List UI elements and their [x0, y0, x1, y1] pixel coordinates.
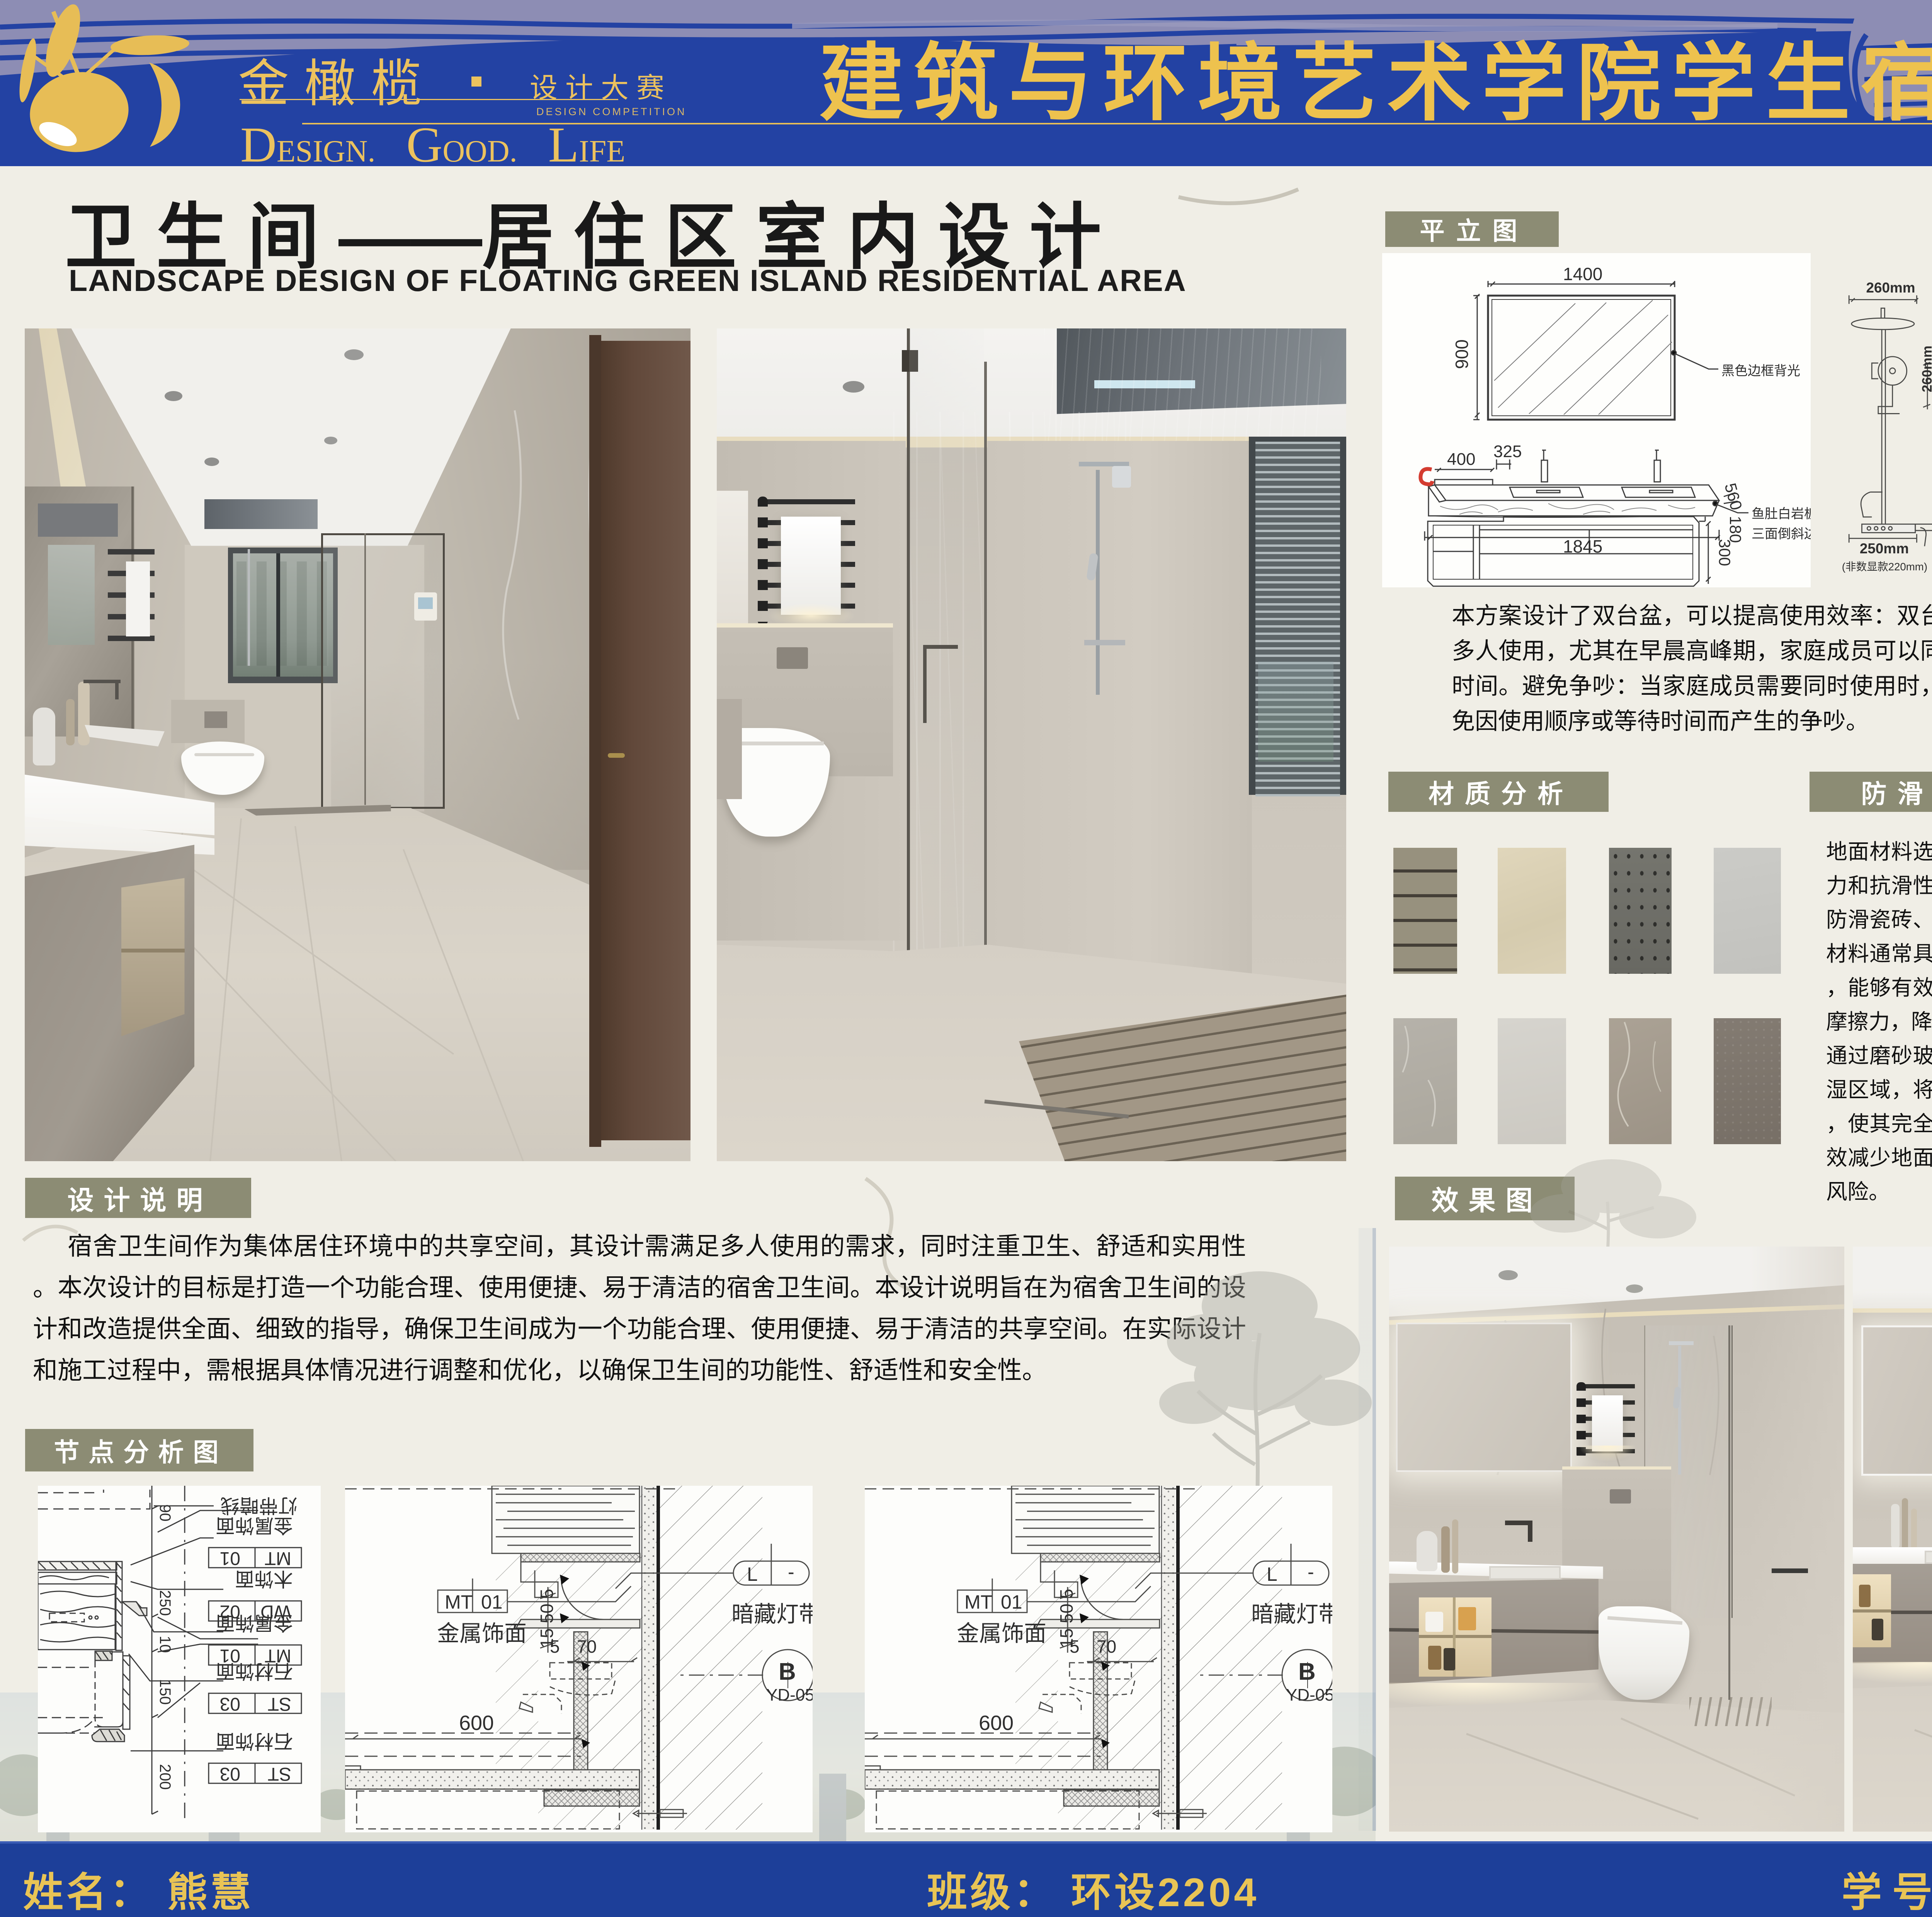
svg-text:15 50 5: 15 50 5 — [1056, 1589, 1077, 1648]
svg-text:90: 90 — [156, 1504, 173, 1522]
svg-text:01: 01 — [481, 1591, 503, 1613]
svg-text:黑色边框背光: 黑色边框背光 — [1721, 364, 1800, 378]
svg-text:金属饰面: 金属饰面 — [437, 1621, 527, 1646]
svg-text:260mm: 260mm — [1920, 345, 1932, 392]
svg-text:暗藏灯带: 暗藏灯带 — [1251, 1602, 1332, 1627]
svg-text:200: 200 — [156, 1764, 173, 1790]
svg-text:600: 600 — [459, 1711, 494, 1735]
svg-text:MT: MT — [265, 1548, 291, 1568]
svg-text:250mm: 250mm — [1860, 541, 1909, 556]
svg-text:MT: MT — [964, 1591, 992, 1613]
svg-text:1400: 1400 — [1563, 264, 1602, 284]
svg-text:石材饰面: 石材饰面 — [216, 1660, 293, 1682]
svg-text:260mm: 260mm — [1866, 280, 1915, 296]
svg-text:1845: 1845 — [1563, 536, 1602, 556]
svg-text:ST: ST — [268, 1764, 291, 1784]
svg-text:03: 03 — [220, 1694, 240, 1714]
svg-text:金属饰面: 金属饰面 — [216, 1515, 293, 1536]
svg-text:(非数显款220mm): (非数显款220mm) — [1842, 561, 1927, 573]
svg-text:YD-05: YD-05 — [766, 1686, 813, 1704]
svg-text:70: 70 — [1097, 1636, 1116, 1657]
svg-text:金属饰面: 金属饰面 — [957, 1621, 1046, 1646]
svg-text:鱼肚白岩板: 鱼肚白岩板 — [1752, 507, 1811, 521]
svg-text:暗藏灯带: 暗藏灯带 — [731, 1602, 813, 1627]
svg-text:400: 400 — [1447, 450, 1475, 469]
svg-text:-: - — [788, 1561, 794, 1583]
svg-text:10: 10 — [156, 1636, 173, 1653]
svg-text:70: 70 — [577, 1636, 597, 1657]
svg-text:石材饰面: 石材饰面 — [216, 1730, 293, 1752]
svg-text:250: 250 — [156, 1590, 173, 1616]
svg-text:B: B — [779, 1658, 796, 1685]
svg-text:600: 600 — [979, 1711, 1014, 1735]
svg-text:L: L — [1267, 1563, 1277, 1585]
svg-text:-: - — [1308, 1561, 1314, 1583]
svg-text:900: 900 — [1452, 339, 1472, 369]
svg-text:ST: ST — [268, 1694, 291, 1714]
svg-text:L: L — [747, 1563, 758, 1585]
svg-text:01: 01 — [220, 1548, 240, 1568]
svg-text:B: B — [1298, 1658, 1316, 1685]
svg-text:三面倒斜边小防水: 三面倒斜边小防水 — [1752, 527, 1811, 541]
svg-text:灯带暗线: 灯带暗线 — [220, 1495, 298, 1516]
svg-text:300: 300 — [1716, 539, 1734, 566]
svg-text:YD-05: YD-05 — [1286, 1686, 1332, 1704]
svg-text:木饰面: 木饰面 — [235, 1568, 293, 1590]
svg-text:15 50 5: 15 50 5 — [537, 1589, 557, 1648]
svg-text:MT: MT — [445, 1591, 473, 1613]
svg-text:03: 03 — [220, 1764, 240, 1784]
svg-text:01: 01 — [1001, 1591, 1022, 1613]
svg-text:150: 150 — [156, 1679, 173, 1705]
svg-text:金属饰面: 金属饰面 — [216, 1612, 293, 1634]
svg-text:325: 325 — [1493, 442, 1522, 461]
